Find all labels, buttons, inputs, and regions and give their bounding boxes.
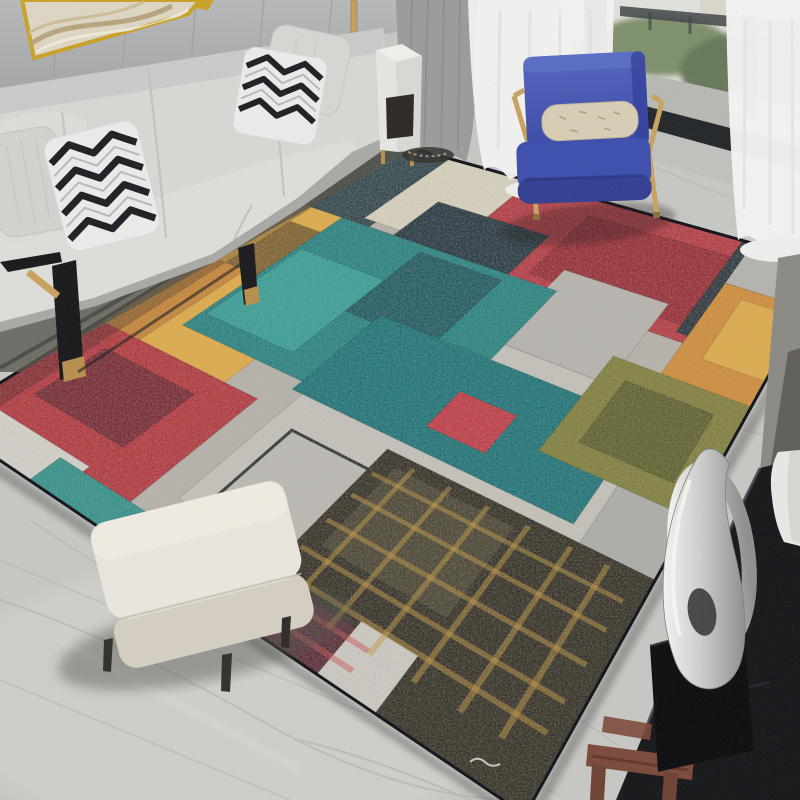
living-room-photo	[0, 0, 800, 800]
scene-canvas	[0, 0, 800, 800]
photo-grain	[0, 0, 800, 800]
